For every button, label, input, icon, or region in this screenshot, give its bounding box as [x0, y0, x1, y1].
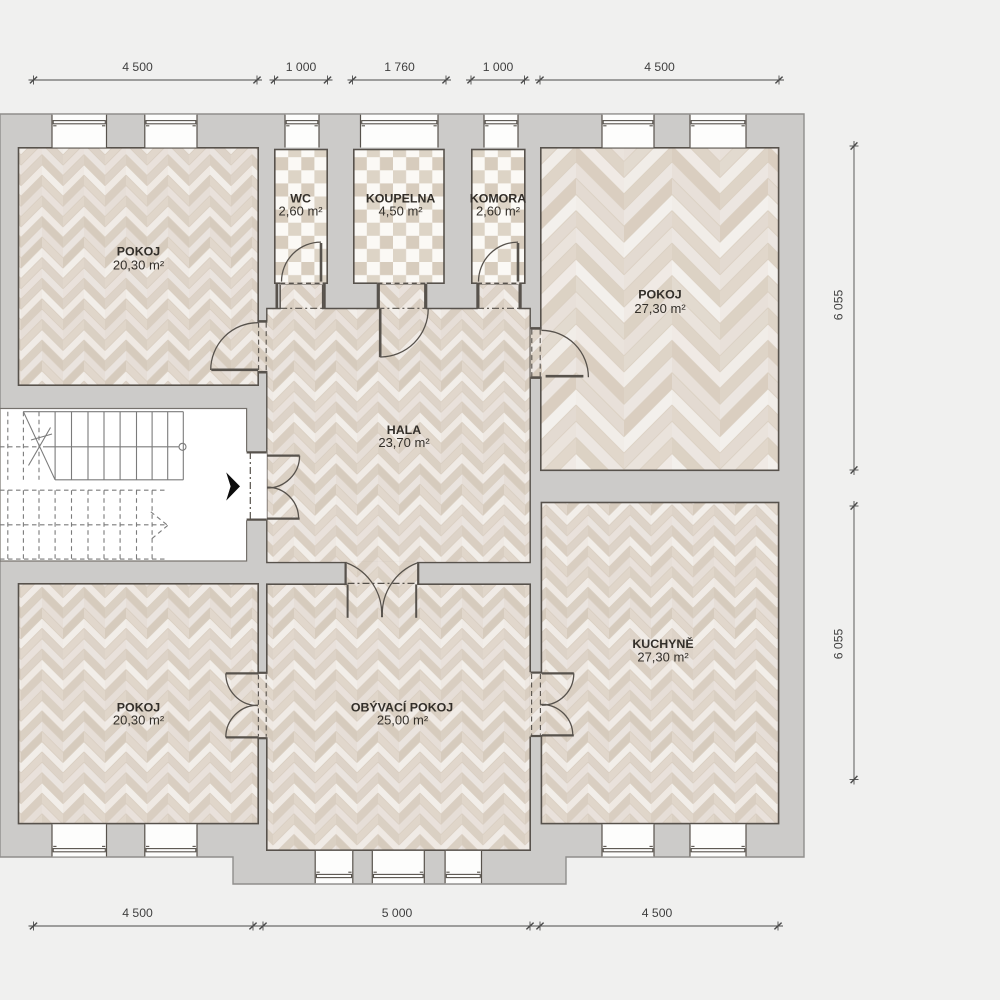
- svg-text:23,70 m²: 23,70 m²: [378, 435, 430, 450]
- svg-text:1 000: 1 000: [483, 60, 514, 74]
- svg-text:20,30 m²: 20,30 m²: [113, 258, 165, 273]
- svg-text:20,30 m²: 20,30 m²: [113, 713, 165, 728]
- svg-text:27,30 m²: 27,30 m²: [634, 301, 686, 316]
- svg-text:2,60 m²: 2,60 m²: [279, 203, 324, 218]
- svg-text:4,50 m²: 4,50 m²: [379, 203, 424, 218]
- svg-text:POKOJ: POKOJ: [638, 288, 681, 302]
- svg-text:5 000: 5 000: [382, 906, 413, 920]
- svg-text:4 500: 4 500: [642, 906, 673, 920]
- svg-text:1 000: 1 000: [286, 60, 317, 74]
- svg-text:6 055: 6 055: [832, 290, 846, 321]
- svg-text:25,00 m²: 25,00 m²: [377, 713, 429, 728]
- svg-text:4 500: 4 500: [122, 906, 153, 920]
- svg-text:4 500: 4 500: [644, 60, 675, 74]
- svg-text:1 760: 1 760: [384, 60, 415, 74]
- svg-text:6 055: 6 055: [832, 629, 846, 660]
- svg-text:27,30 m²: 27,30 m²: [637, 650, 689, 665]
- svg-text:POKOJ: POKOJ: [117, 245, 160, 259]
- svg-text:2,60 m²: 2,60 m²: [476, 203, 521, 218]
- svg-text:4 500: 4 500: [122, 60, 153, 74]
